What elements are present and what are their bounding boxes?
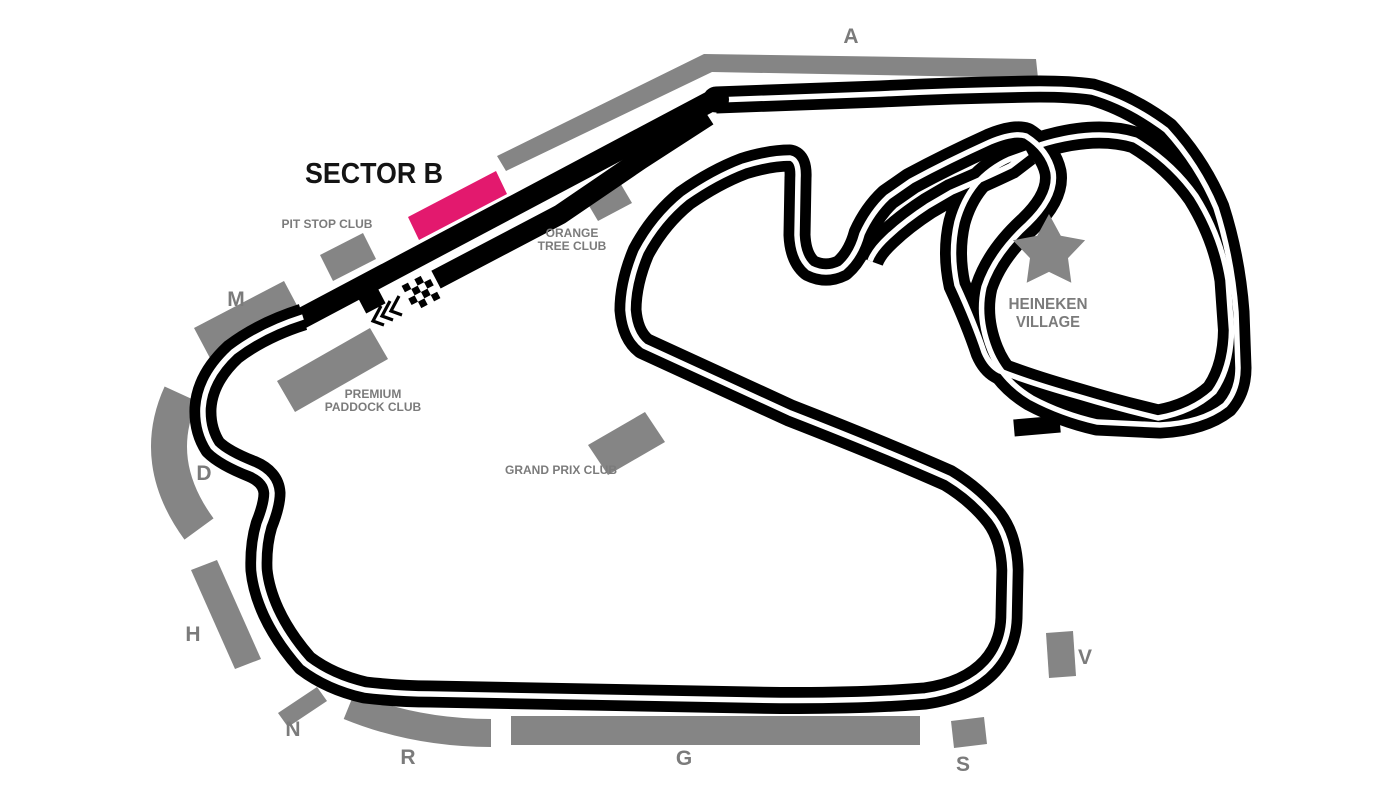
svg-text:PADDOCK CLUB: PADDOCK CLUB bbox=[325, 400, 422, 414]
svg-text:SECTOR B: SECTOR B bbox=[305, 158, 443, 190]
svg-text:HEINEKEN: HEINEKEN bbox=[1009, 296, 1088, 313]
svg-text:ORANGE: ORANGE bbox=[546, 226, 599, 240]
svg-text:PREMIUM: PREMIUM bbox=[345, 387, 402, 401]
svg-text:A: A bbox=[843, 25, 858, 48]
svg-text:PIT STOP CLUB: PIT STOP CLUB bbox=[282, 217, 373, 231]
svg-text:S: S bbox=[956, 753, 970, 776]
svg-text:M: M bbox=[227, 288, 245, 311]
svg-text:N: N bbox=[285, 718, 300, 741]
svg-text:G: G bbox=[676, 747, 692, 770]
svg-text:D: D bbox=[196, 462, 211, 485]
svg-text:H: H bbox=[185, 623, 200, 646]
svg-text:TREE CLUB: TREE CLUB bbox=[538, 239, 607, 253]
svg-text:VILLAGE: VILLAGE bbox=[1016, 314, 1080, 331]
svg-text:R: R bbox=[400, 746, 415, 769]
svg-text:GRAND PRIX CLUB: GRAND PRIX CLUB bbox=[505, 463, 617, 477]
svg-text:V: V bbox=[1078, 646, 1092, 669]
